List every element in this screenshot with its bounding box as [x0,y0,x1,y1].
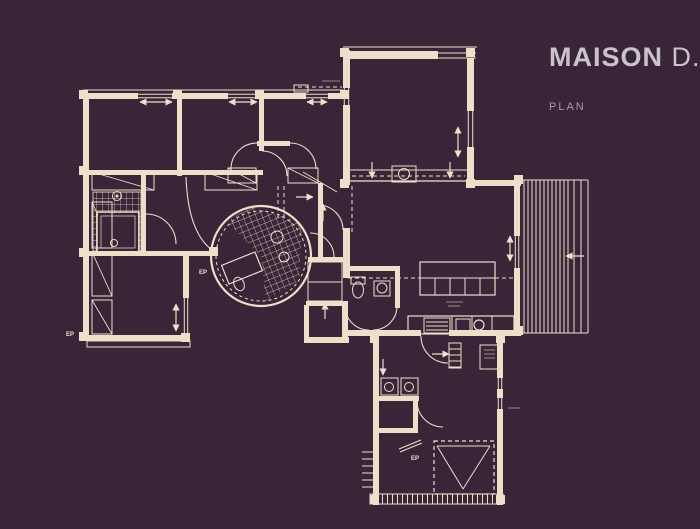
wall [257,141,290,146]
wall [514,180,520,238]
wall [308,257,346,262]
wall [83,93,89,341]
wall-post [181,333,190,342]
wall [345,51,438,59]
wall [449,330,521,336]
wall [83,335,189,341]
wall-post [255,90,264,99]
wall [342,306,348,342]
wall-post [340,90,349,99]
hatched-wall-band [370,494,503,504]
wall [373,340,379,505]
title-suffix: D. [663,42,700,72]
wall-post [340,179,349,188]
wall [345,330,421,336]
ep-label: EP [66,332,74,338]
wall [345,266,398,271]
wall [377,396,419,401]
wall [306,301,348,306]
wall-post [79,248,88,257]
wall-post [173,90,182,99]
wall-post [79,332,88,341]
floor-cutout [98,213,138,251]
ep-label: EP [199,270,207,276]
wall-post [496,334,505,343]
wall [467,58,474,114]
wall-post [79,166,88,175]
page-title: MAISON D. [549,42,700,73]
title-block: MAISON D. PLAN [549,42,700,113]
presentation-page: EPEPEP MAISON D. PLAN [0,0,700,529]
wall-post [370,334,379,343]
ep-label: EP [411,456,419,462]
wall [141,175,146,253]
wall-post [514,175,523,184]
page-subtitle: PLAN [549,101,700,113]
wall [177,96,182,176]
wall-post [79,90,88,99]
wall [377,428,417,433]
wall-post [514,326,523,335]
title-main: MAISON [549,42,663,72]
wall [514,266,520,332]
wall-post [466,48,475,57]
wall [343,103,350,185]
wall-post [340,48,349,57]
wall [318,183,323,259]
fixture-dot [116,195,119,198]
wall-post [466,179,475,188]
wall [395,266,400,308]
wall [467,180,521,186]
